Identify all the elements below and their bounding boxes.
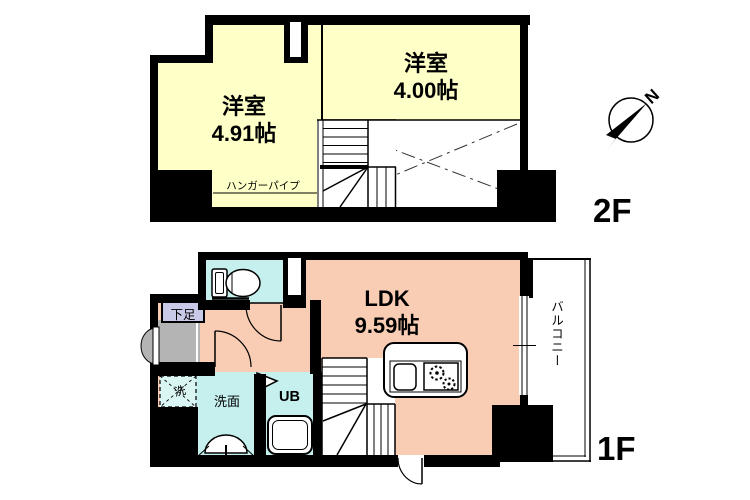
kitchen-counter-icon <box>384 343 467 397</box>
compass-icon: N <box>606 85 663 148</box>
floor1-label: 1F <box>597 432 636 466</box>
south-door-arc <box>398 455 424 484</box>
room-name: LDK <box>327 285 447 312</box>
floor2-label: 2F <box>593 194 632 228</box>
room-name: 洋室 <box>184 93 304 120</box>
washroom-label: 洗面 <box>199 391 255 410</box>
kitchen-sink-icon <box>394 364 416 390</box>
room-west-right-label: 洋室 4.00帖 <box>366 50 486 104</box>
duct-slot <box>288 258 301 295</box>
balcony-label: バルコニー <box>547 300 566 400</box>
entry-floor <box>158 320 200 368</box>
bathtub-icon <box>268 416 312 454</box>
duct-slot <box>290 22 301 57</box>
room-size: 4.91帖 <box>184 120 304 147</box>
room-name: 洋室 <box>366 50 486 77</box>
entrance-door-icon <box>141 327 159 365</box>
hanger-pipe-label: ハンガーパイプ <box>210 178 316 193</box>
toilet-icon <box>212 269 260 299</box>
ldk-label: LDK 9.59帖 <box>327 285 447 339</box>
room-size: 9.59帖 <box>327 312 447 339</box>
unit-bath-label: UB <box>267 389 312 405</box>
room-size: 4.00帖 <box>366 77 486 104</box>
floor-plan: N 洋室 4.91帖 洋室 4.00帖 ハンガーパイプ 2F LDK 9.59帖… <box>0 0 750 500</box>
room-west-left-label: 洋室 4.91帖 <box>184 93 304 147</box>
shoe-storage-label: 下足 <box>163 304 203 323</box>
staircase-2f-icon <box>317 120 396 207</box>
